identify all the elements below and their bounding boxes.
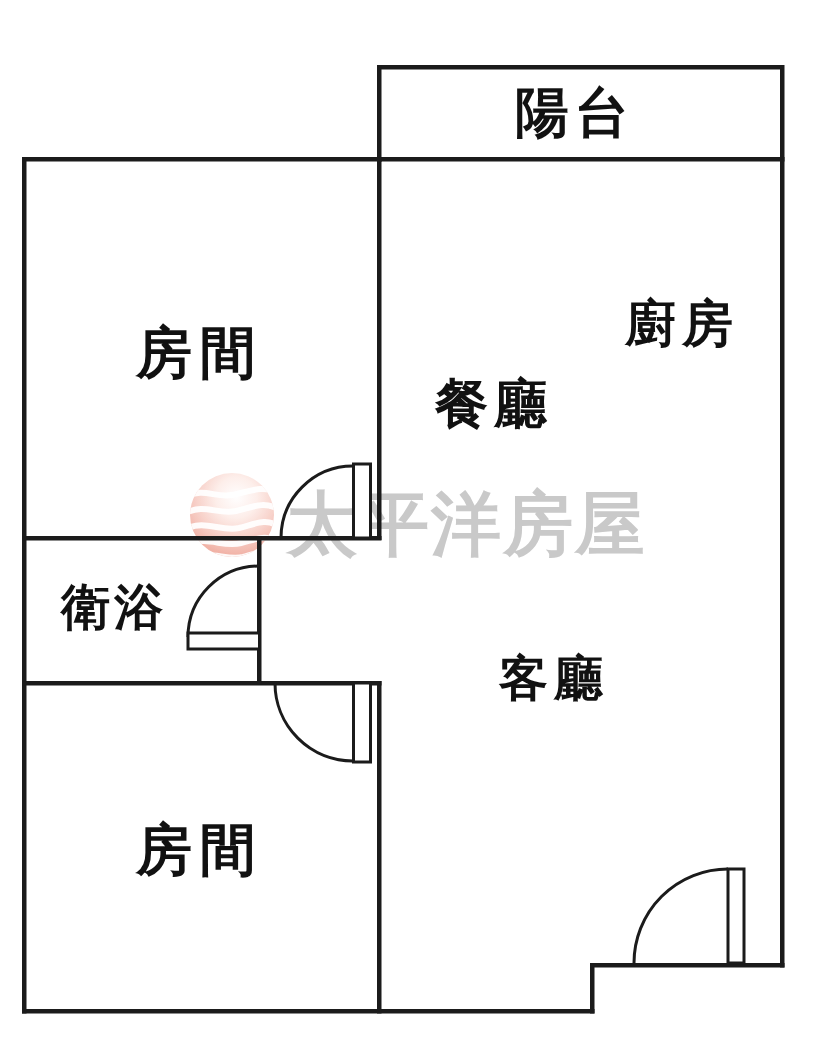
room-label-bathroom: 衛浴: [59, 580, 167, 634]
wall-main-upper: [377, 157, 382, 540]
floorplan-drawing: 太平洋房屋: [0, 0, 830, 1040]
room-label-dining: 餐廳: [434, 374, 553, 433]
door-entrance: [634, 869, 744, 963]
door-bedroom-bottom-arc: [275, 683, 353, 761]
wall-top: [22, 157, 785, 162]
door-bedroom-bottom: [275, 683, 371, 762]
floorplan-canvas: 太平洋房屋: [0, 0, 830, 1040]
door-bathroom: [188, 566, 260, 649]
room-label-living: 客廳: [498, 651, 609, 705]
watermark-brand-text: 太平洋房屋: [285, 486, 647, 563]
wall-living-bottom: [590, 963, 785, 968]
wall-bathroom-top: [22, 536, 382, 541]
wall-bathroom-right: [257, 536, 262, 685]
wall-balcony-top: [377, 65, 784, 70]
room-label-bedroom-top: 房間: [135, 321, 264, 384]
door-bathroom-leaf: [188, 633, 260, 649]
room-label-kitchen: 廚房: [624, 295, 739, 352]
door-bathroom-arc: [188, 566, 259, 637]
wall-right: [780, 65, 785, 968]
room-label-bedroom-bottom: 房間: [135, 818, 264, 881]
door-entrance-arc: [634, 869, 728, 963]
watermark-logo: [186, 471, 278, 559]
wall-balcony-left: [377, 65, 382, 162]
wall-bottom: [22, 1009, 595, 1014]
door-entrance-leaf: [728, 869, 744, 963]
door-bedroom-bottom-leaf: [354, 683, 371, 762]
room-labels: 陽台 房間 廚房 餐廳 衛浴 客廳 房間: [59, 82, 739, 881]
wall-bathroom-bottom: [22, 681, 382, 686]
wall-entry-step: [590, 963, 595, 1014]
door-bedroom-top-leaf: [354, 464, 371, 538]
wall-main-lower: [377, 681, 382, 1014]
room-label-balcony: 陽台: [515, 82, 635, 142]
wall-left: [22, 157, 27, 1014]
